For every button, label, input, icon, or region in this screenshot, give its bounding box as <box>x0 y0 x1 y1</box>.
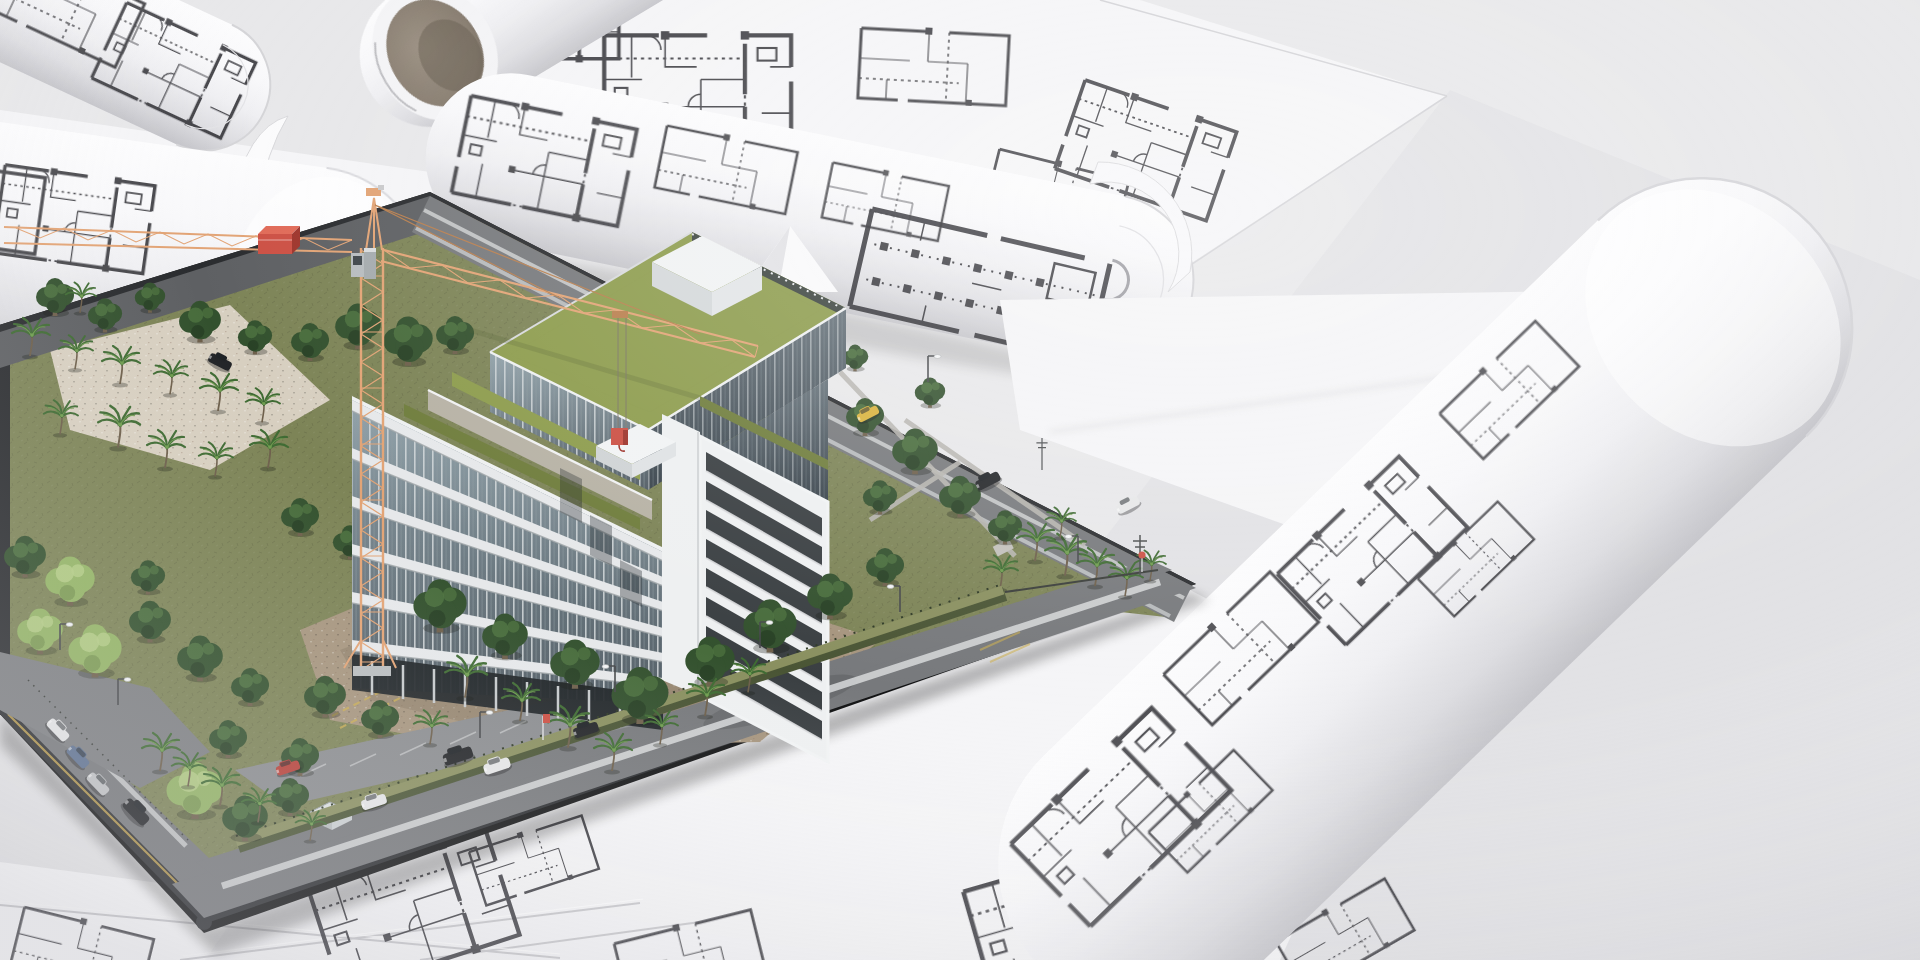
render-canvas <box>0 0 1920 960</box>
architecture-blueprint-scene <box>0 0 1920 960</box>
lighting-overlay <box>0 0 1920 960</box>
